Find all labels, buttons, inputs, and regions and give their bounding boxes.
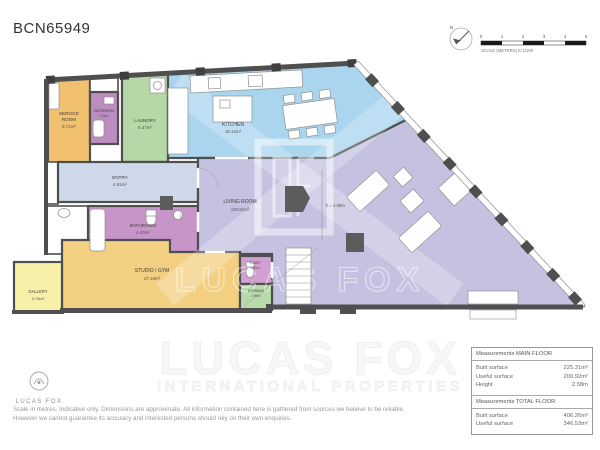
disclaimer-line-2: However we cannot guarantee its accuracy… [13,415,463,424]
label-toilet-area: 1.32m² [250,266,260,270]
label-entry: ENTRY [112,175,128,180]
label-kitchen-area: 36.12m² [225,129,242,134]
washer-drum [154,82,162,90]
scale-caption: SCALE (METERS) E:1/100 [481,48,534,53]
closet-top-shape [90,78,118,92]
measurement-row: Built surface 225.31m² [476,364,588,373]
room-gallery-shape [14,262,62,312]
scale-tick-0: 0 [480,34,483,39]
north-label: N [450,25,453,30]
measurement-row: Built surface 406.26m² [476,412,588,421]
lucasfox-logo: LUCAS FOX [10,370,68,405]
disclaimer-line-1: Scale in metres. Indicative only. Dimens… [13,406,463,415]
measurement-label: Useful surface [476,373,513,382]
bathtub [90,209,105,251]
sink-mid [174,211,183,220]
label-entry-area: 4.61m² [113,182,127,187]
measurement-row: Height 2.58m [476,381,588,390]
sideboard [468,291,518,304]
measurement-value: 225.31m² [564,364,589,373]
kitchen-island [213,96,252,122]
scale-ticks: 0 1 2 3 4 5 [480,34,588,39]
scale-tick-5: 5 [585,34,588,39]
measurement-row: Useful surface 200.92m² [476,373,588,382]
disclaimer: Scale in metres. Indicative only. Dimens… [13,406,463,423]
scale-bar: 0 1 2 3 4 5 SCALE (METERS) E:1/100 [480,34,588,53]
label-storage-area: 2.99m² [251,294,261,298]
measurement-label: Built surface [476,364,508,373]
left-wall [44,79,48,255]
measurements-main-header: Measurements MAIN FLOOR [472,348,592,361]
measurement-row: Useful surface 346.53m² [476,420,588,429]
measurement-value: 346.53m² [564,420,589,429]
label-bathroom-mid-area: 4.43m² [136,230,150,235]
label-service-area: 8.71m² [62,124,76,129]
measurement-value: 2.58m [572,381,588,390]
north-arrow-icon: N [450,25,472,50]
bottom-watermark: LUCAS FOX INTERNATIONAL PROPERTIES [157,332,463,395]
kitchen-sink [220,100,230,108]
floorplan-page: LUCAS FOX [0,0,600,450]
sink-top [104,97,114,104]
label-laundry-area: 8.47m² [138,125,152,130]
measurement-label: Useful surface [476,420,513,429]
sink-closet [58,209,70,218]
label-bathroom-mid: BATHROOM [130,223,156,228]
wall-bump-1 [300,309,316,314]
label-gallery-area: 3.78m² [32,296,45,301]
lucasfox-logo-text: LUCAS FOX [10,399,68,405]
measurement-label: Height [476,381,493,390]
label-gallery: GALLERY [28,289,47,294]
label-studio-area: 27.18m² [144,276,161,281]
toilet-fixture-top [93,120,104,137]
measurement-label: Built surface [476,412,508,421]
label-bathroom-top: BATHROOM [94,109,114,113]
bottom-wall-right [268,305,583,310]
room-entry-shape [58,162,198,202]
dining-table [281,89,339,140]
label-living-area: 100.81m² [231,207,250,212]
scale-tick-4: 4 [564,34,567,39]
label-studio: STUDIO / GYM [135,268,169,274]
service-fixture [49,83,59,109]
column-hall [160,196,173,210]
bottom-watermark-name: LUCAS FOX [159,332,461,384]
gallery-bottom-wall [12,310,64,314]
scale-tick-3: 3 [543,34,546,39]
bottom-watermark-tagline: INTERNATIONAL PROPERTIES [157,378,463,395]
measurements-total-header: Measurements TOTAL FLOOR [472,396,592,409]
bottom-wall-left [60,308,272,313]
column-living [346,233,364,252]
measurements-main-section: Measurements MAIN FLOOR Built surface 22… [472,348,592,395]
label-storage: STORAGE [248,289,265,293]
label-living: LIVING ROOM [223,199,256,205]
scale-tick-2: 2 [522,34,525,39]
measurements-total-section: Measurements TOTAL FLOOR Built surface 4… [472,395,592,434]
measurement-value: 200.92m² [564,373,589,382]
label-kitchen: KITCHEN [222,122,244,128]
page-title: BCN65949 [13,20,90,37]
cistern-mid [146,210,156,216]
bottom-wall-step [266,304,272,313]
label-toilet: TOILET [249,261,260,265]
ceiling-height-label: h = 4.80m [326,203,345,208]
wall-bump-2 [340,309,356,314]
lucasfox-emblem-icon [28,370,50,392]
label-laundry: LAUNDRY [134,118,156,123]
label-bathroom-top-area: 2.53m² [99,114,109,118]
measurement-value: 406.26m² [564,412,589,421]
scale-tick-1: 1 [501,34,504,39]
label-service-2: ROOM [62,117,76,122]
kitchen-left-counter [168,88,188,154]
measurements-table: Measurements MAIN FLOOR Built surface 22… [471,347,593,435]
planter-outside [470,310,516,319]
label-service: SERVICE [59,111,79,116]
